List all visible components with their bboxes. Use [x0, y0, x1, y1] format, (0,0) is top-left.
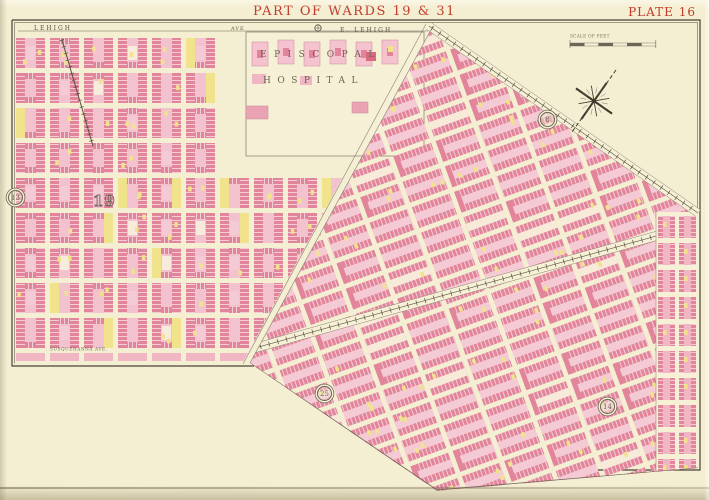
atlas-map-canvas — [0, 0, 709, 500]
ward-number-19: 19 — [93, 192, 116, 210]
map-title: PART OF WARDS 19 & 31 — [253, 4, 456, 19]
hospital-label-line1: EPISCOPAL — [260, 50, 382, 60]
adjacent-plate-ref-14: 14 — [600, 399, 615, 414]
hospital-label-line2: HOSPITAL — [263, 76, 364, 86]
street-label-lehigh-west: LEHIGH — [34, 25, 72, 32]
adjacent-plate-ref-8: 8 — [540, 112, 555, 127]
street-label-e-lehigh: E. LEHIGH — [340, 27, 392, 34]
adjacent-plate-ref-25: 25 — [317, 386, 332, 401]
scale-label: SCALE OF FEET — [570, 34, 610, 39]
street-label-ave: AVE — [231, 26, 245, 32]
street-label-susquehanna: SUSQUEHANNA AVE. — [50, 347, 108, 352]
plate-number-label: PLATE 16 — [628, 5, 696, 19]
adjacent-plate-ref-13: 13 — [8, 190, 23, 205]
